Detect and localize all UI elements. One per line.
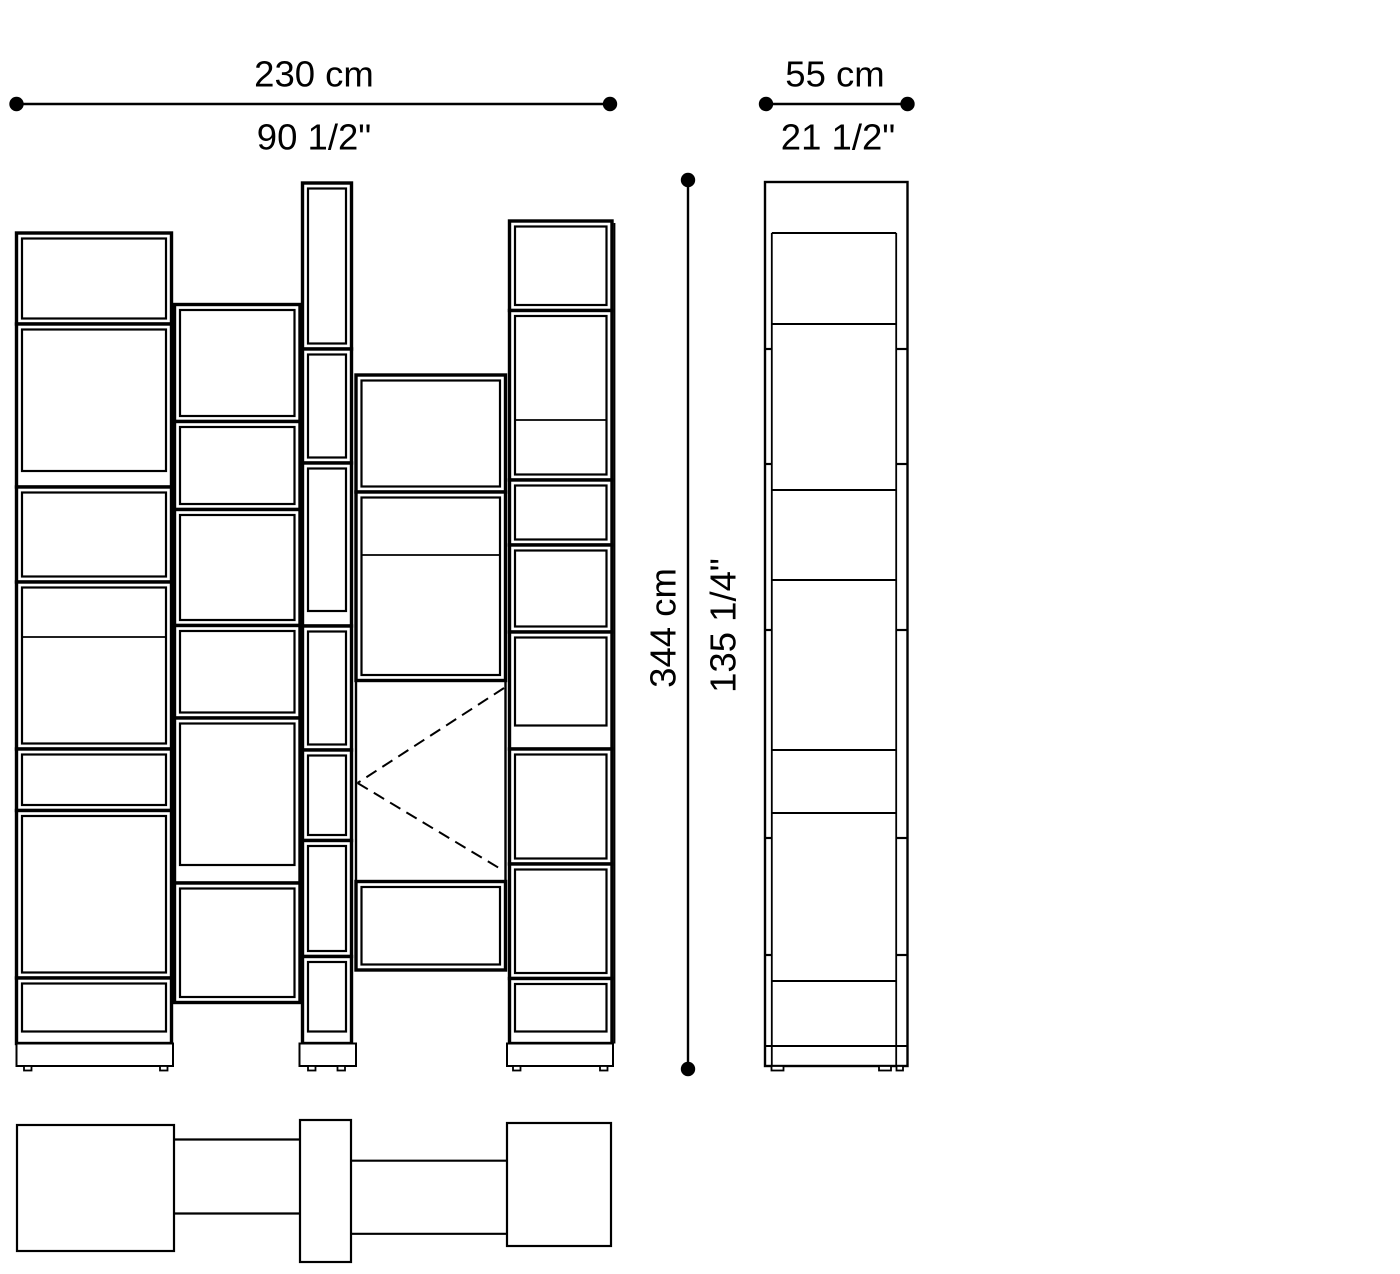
svg-text:21 1/2": 21 1/2" <box>781 117 895 158</box>
svg-text:135 1/4": 135 1/4" <box>703 558 744 693</box>
svg-text:344 cm: 344 cm <box>643 568 684 688</box>
svg-text:55 cm: 55 cm <box>785 54 884 95</box>
svg-text:230 cm: 230 cm <box>254 54 374 95</box>
svg-text:90 1/2": 90 1/2" <box>257 117 371 158</box>
